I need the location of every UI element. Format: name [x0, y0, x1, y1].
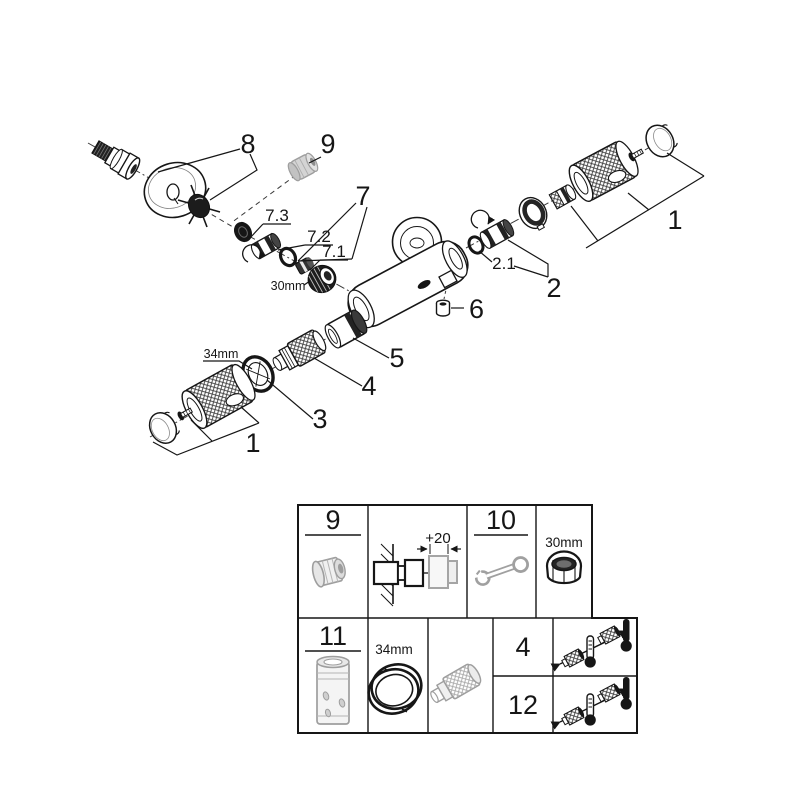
handle-cover-right — [641, 120, 681, 162]
part8-s-union — [89, 137, 142, 181]
label-part-4: 4 — [361, 371, 376, 401]
table-label-12: 12 — [508, 690, 538, 720]
label-part-9: 9 — [320, 129, 335, 159]
label-part-7: 7 — [355, 181, 370, 211]
table-label-plus20: +20 — [425, 530, 450, 547]
label-part-7-3: 7.3 — [265, 206, 289, 225]
part4-cartridge — [268, 328, 329, 377]
exploded-parts-diagram: 8 9 — [0, 0, 800, 800]
part7-2-check-valve — [249, 232, 282, 260]
table-label-30mm: 30mm — [545, 535, 583, 550]
label-part-2: 2 — [546, 273, 561, 303]
spares-table: 9 — [298, 505, 637, 733]
parts-diagram-page: 8 9 — [0, 0, 800, 800]
label-part-1-left: 1 — [245, 428, 260, 458]
label-dim-30mm: 30mm — [271, 279, 306, 293]
table-cell-30mm: 30mm — [545, 535, 583, 583]
part7-3-seal — [230, 219, 255, 246]
label-dim-34mm: 34mm — [204, 347, 239, 361]
label-part-1-right: 1 — [667, 205, 682, 235]
label-part-5: 5 — [389, 343, 404, 373]
table-label-11: 11 — [319, 621, 347, 651]
part1-right-group: 1 — [514, 120, 704, 248]
label-part-6: 6 — [469, 294, 484, 324]
sleeve-icon — [317, 657, 349, 725]
nut-icon — [547, 552, 581, 584]
part7-group: 7 7.3 7.2 7.1 30mm — [230, 181, 370, 298]
table-label-10: 10 — [486, 505, 516, 535]
table-label-4: 4 — [515, 632, 530, 662]
label-part-2-1: 2.1 — [492, 254, 516, 273]
part1-left-group: 1 — [144, 361, 260, 458]
mixer-body: 6 — [341, 218, 484, 334]
label-part-7-1: 7.1 — [322, 242, 346, 261]
part9-extension: 9 — [286, 129, 336, 182]
handle-cap-right — [514, 193, 553, 235]
table-label-34mm: 34mm — [375, 642, 413, 657]
label-part-3: 3 — [312, 404, 327, 434]
label-part-8: 8 — [240, 129, 255, 159]
handle-cover-left — [144, 408, 182, 448]
part2-group: 2.1 2 — [466, 210, 561, 303]
table-label-9: 9 — [325, 505, 340, 535]
